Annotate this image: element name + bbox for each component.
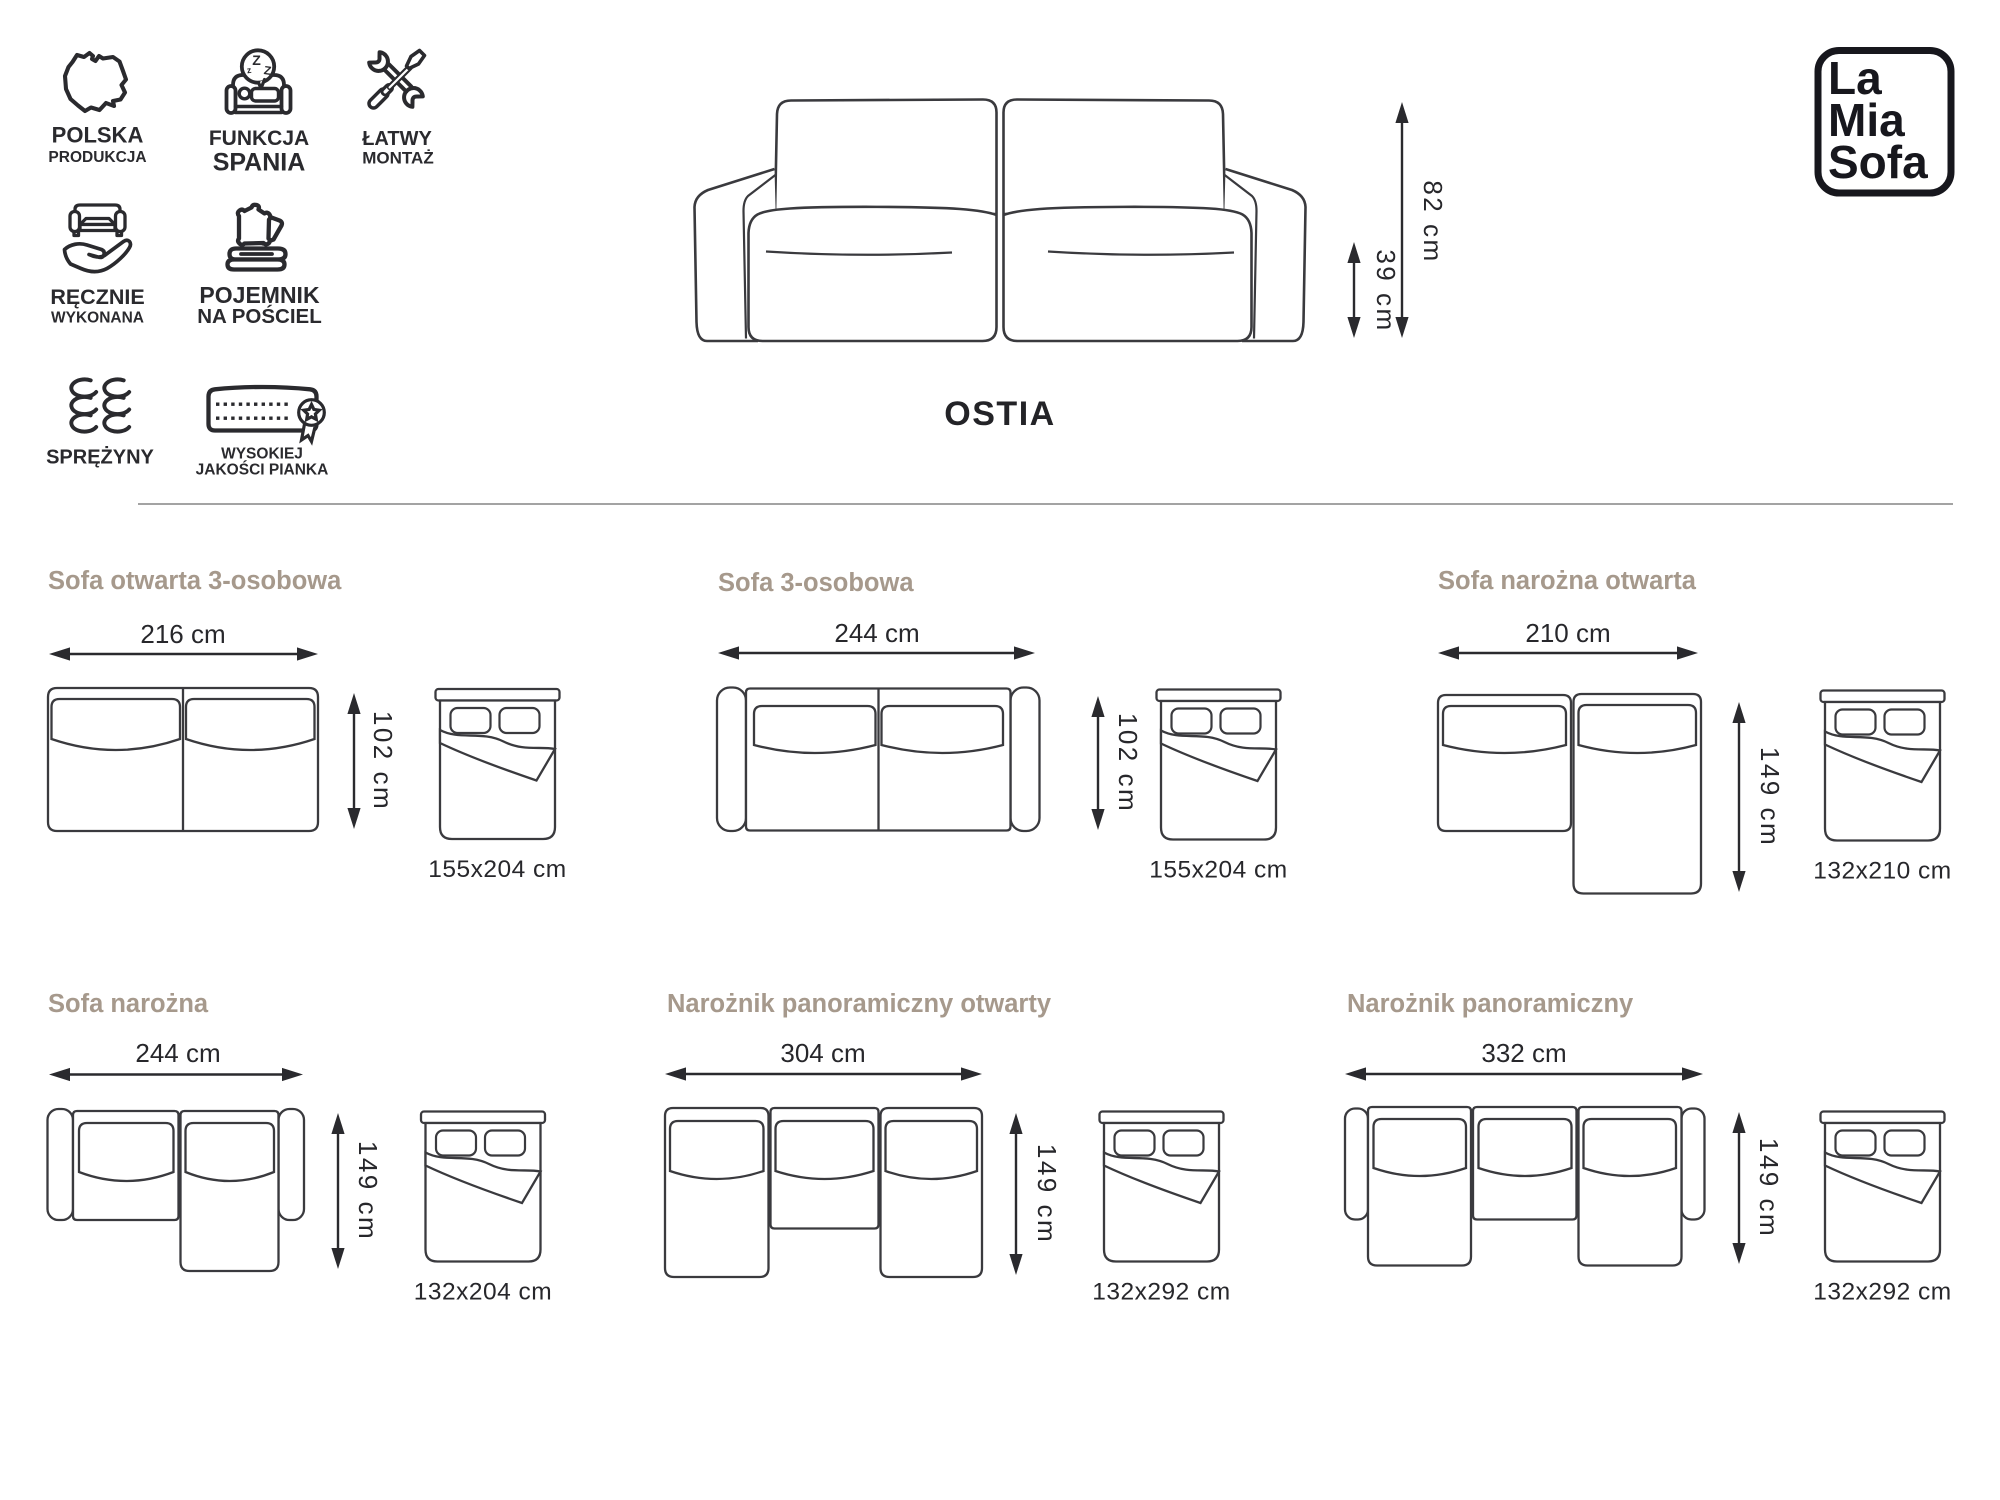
- svg-text:Sofa narożna: Sofa narożna: [48, 990, 209, 1018]
- svg-text:210 cm: 210 cm: [1525, 618, 1610, 648]
- svg-text:WYSOKIEJ: WYSOKIEJ: [221, 446, 303, 463]
- svg-text:82 cm: 82 cm: [1418, 180, 1448, 263]
- svg-text:Z: Z: [252, 52, 261, 68]
- svg-text:SPRĘŻYNY: SPRĘŻYNY: [46, 446, 154, 469]
- svg-text:39 cm: 39 cm: [1371, 249, 1401, 332]
- svg-text:149 cm: 149 cm: [1032, 1144, 1062, 1244]
- svg-text:OSTIA: OSTIA: [944, 395, 1055, 433]
- svg-text:216 cm: 216 cm: [140, 619, 225, 649]
- svg-text:JAKOŚCI PIANKA: JAKOŚCI PIANKA: [196, 461, 329, 479]
- svg-text:NA POŚCIEL: NA POŚCIEL: [197, 304, 322, 328]
- svg-text:132x204 cm: 132x204 cm: [414, 1279, 552, 1306]
- svg-text:Sofa otwarta 3-osobowa: Sofa otwarta 3-osobowa: [48, 567, 342, 595]
- svg-text:304 cm: 304 cm: [780, 1038, 865, 1068]
- svg-text:Narożnik panoramiczny otwarty: Narożnik panoramiczny otwarty: [667, 990, 1052, 1018]
- svg-text:149 cm: 149 cm: [1754, 1138, 1784, 1238]
- svg-text:FUNKCJA: FUNKCJA: [209, 127, 309, 150]
- svg-text:132x292 cm: 132x292 cm: [1813, 1279, 1951, 1306]
- svg-text:Sofa narożna otwarta: Sofa narożna otwarta: [1438, 567, 1697, 595]
- svg-text:POLSKA: POLSKA: [52, 123, 144, 148]
- svg-text:155x204 cm: 155x204 cm: [1149, 857, 1287, 884]
- svg-text:PRODUKCJA: PRODUKCJA: [48, 149, 146, 166]
- svg-text:MONTAŻ: MONTAŻ: [362, 149, 433, 168]
- svg-text:132x292 cm: 132x292 cm: [1092, 1279, 1230, 1306]
- svg-text:ŁATWY: ŁATWY: [362, 128, 432, 150]
- svg-text:SPANIA: SPANIA: [213, 149, 306, 177]
- svg-text:Sofa 3-osobowa: Sofa 3-osobowa: [718, 569, 914, 597]
- svg-text:244 cm: 244 cm: [135, 1038, 220, 1068]
- svg-text:149 cm: 149 cm: [1755, 747, 1785, 847]
- svg-text:149 cm: 149 cm: [353, 1141, 383, 1241]
- svg-text:102 cm: 102 cm: [368, 711, 398, 811]
- svg-text:244 cm: 244 cm: [834, 618, 919, 648]
- svg-text:Narożnik panoramiczny: Narożnik panoramiczny: [1347, 990, 1634, 1018]
- svg-text:102 cm: 102 cm: [1113, 713, 1143, 813]
- svg-text:332 cm: 332 cm: [1481, 1038, 1566, 1068]
- svg-text:Sofa: Sofa: [1828, 136, 1928, 188]
- svg-text:155x204 cm: 155x204 cm: [428, 856, 566, 883]
- svg-text:WYKONANA: WYKONANA: [51, 310, 144, 327]
- svg-text:132x210 cm: 132x210 cm: [1813, 858, 1951, 885]
- svg-text:RĘCZNIE: RĘCZNIE: [50, 285, 144, 309]
